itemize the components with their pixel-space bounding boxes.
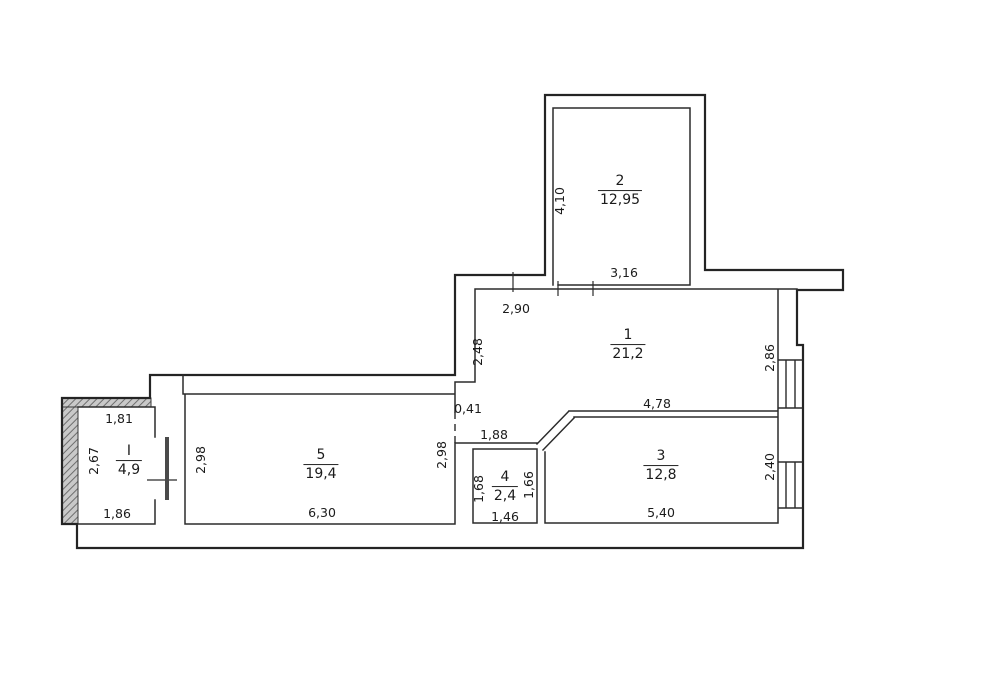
balcony-wall-hatch-left [62, 398, 78, 524]
dim-room1-right: 2,86 [764, 344, 777, 372]
window-symbol-room3 [778, 462, 803, 508]
dim-room5-bottom: 6,30 [308, 507, 336, 520]
dim-room2-left: 4,10 [554, 187, 567, 215]
dim-roomI-top: 1,81 [105, 413, 133, 426]
dim-room4-left: 1,68 [473, 475, 486, 503]
dim-room5-right: 2,98 [436, 441, 449, 469]
dim-room4-top: 1,88 [480, 429, 508, 442]
room-I-label: I 4,9 [116, 443, 142, 479]
dim-room3-right: 2,40 [764, 453, 777, 481]
room-1-number: 1 [610, 327, 645, 345]
dim-wall-stub: 0,41 [454, 403, 482, 416]
room-2-number: 2 [598, 173, 642, 191]
dim-room1-left: 2,48 [472, 338, 485, 366]
dim-room3-bottom: 5,40 [647, 507, 675, 520]
room-4-area: 2,4 [492, 487, 518, 505]
room-3-label: 3 12,8 [643, 448, 678, 484]
dim-roomI-bottom: 1,86 [103, 508, 131, 521]
floor-plan-drawing [0, 0, 990, 699]
room-5-area: 19,4 [303, 465, 338, 483]
dim-room2-bottom: 3,16 [610, 267, 638, 280]
room-1-area: 21,2 [610, 345, 645, 363]
dim-room4-bottom: 1,46 [491, 511, 519, 524]
dim-roomI-left: 2,67 [88, 447, 101, 475]
dim-room5-left: 2,98 [195, 446, 208, 474]
room-1-label: 1 21,2 [610, 327, 645, 363]
room-2-label: 2 12,95 [598, 173, 642, 209]
dim-room4-right: 1,66 [523, 471, 536, 499]
exterior-walls [62, 95, 843, 548]
room-5-number: 5 [303, 447, 338, 465]
dim-room1-bottom: 4,78 [643, 398, 671, 411]
window-symbol-room1 [778, 360, 803, 408]
room-3-area: 12,8 [643, 466, 678, 484]
room-4-label: 4 2,4 [492, 469, 518, 505]
floor-plan: 2 12,95 1 21,2 5 19,4 I 4,9 4 2,4 3 12,8… [0, 0, 990, 699]
room-4-number: 4 [492, 469, 518, 487]
room-I-area: 4,9 [116, 461, 142, 479]
dim-room1-top: 2,90 [502, 303, 530, 316]
room-I-number: I [116, 443, 142, 461]
balcony-wall-hatch-top [62, 398, 151, 407]
room-3-number: 3 [643, 448, 678, 466]
room-5-label: 5 19,4 [303, 447, 338, 483]
room-2-area: 12,95 [598, 191, 642, 209]
